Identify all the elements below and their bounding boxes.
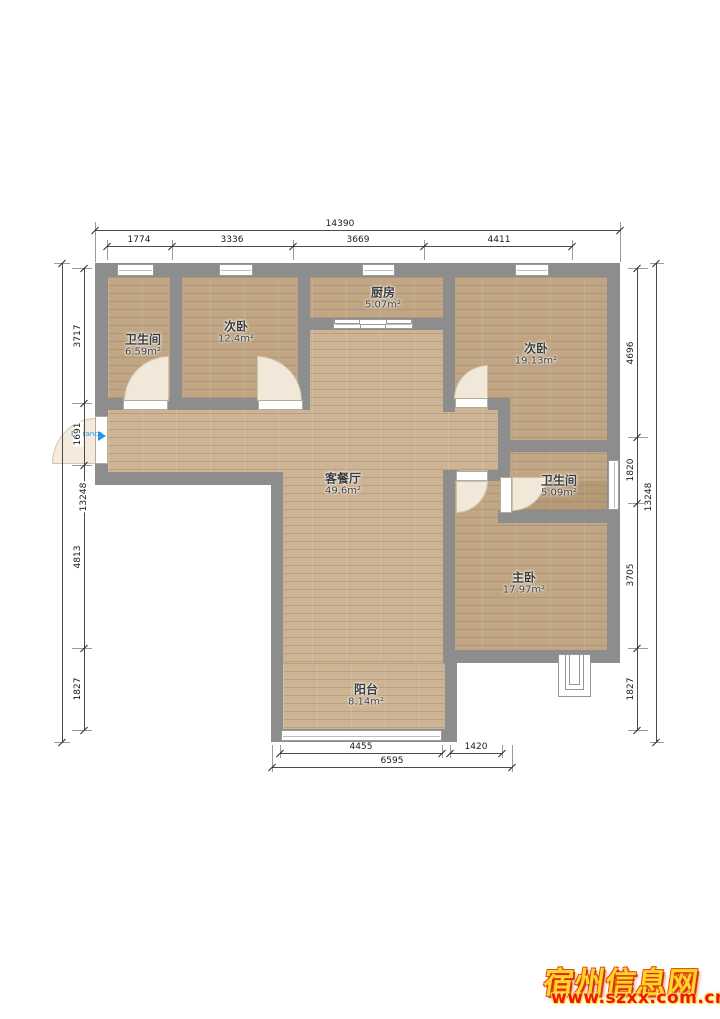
- wall-balcony-east: [445, 663, 457, 742]
- wall-west-lower: [271, 472, 283, 742]
- room-name: 次卧: [515, 343, 557, 356]
- wall-bathroom2-north: [498, 440, 620, 452]
- dim-left-seg-1: 3717: [73, 324, 83, 349]
- room-area: 17.97m²: [503, 585, 545, 597]
- room-name: 厨房: [365, 287, 401, 300]
- dim-right-seg-4: 1827: [626, 677, 636, 702]
- dim-bottom-seg-1: 4455: [349, 742, 374, 752]
- dim-line-right-segments: [637, 268, 638, 730]
- dim-top-seg-3: 3669: [346, 235, 371, 245]
- wall-bathroom1-east: [170, 277, 182, 410]
- wall-living-southwest: [95, 472, 283, 485]
- floor-plan-image: Entrance 卫生间 6.59m² 次卧 12.4m² 厨房 5.07m² …: [0, 0, 720, 1019]
- sliding-panel-3: [386, 319, 412, 324]
- dim-line-bottom-total: [272, 767, 512, 768]
- room-name: 主卧: [503, 572, 545, 585]
- dim-line-bottom-seg-1: [280, 753, 442, 754]
- wall-hall-north-b: [168, 398, 258, 410]
- outside-area-lower-right: [457, 663, 623, 745]
- door-bathroom-1: [123, 400, 168, 410]
- room-area: 6.59m²: [125, 347, 161, 359]
- door-bedroom-2: [455, 398, 488, 408]
- dim-top-seg-2: 3336: [220, 235, 245, 245]
- door-bedroom-1: [258, 400, 303, 410]
- dim-right-seg-1: 4696: [626, 341, 636, 366]
- dim-line-bottom-seg-2: [450, 753, 502, 754]
- dim-line-right-total: [656, 263, 657, 742]
- room-name: 卫生间: [541, 475, 577, 488]
- dim-line-left-total: [62, 263, 63, 742]
- room-area: 12.4m²: [218, 334, 254, 346]
- dim-line-top-segments: [107, 246, 572, 247]
- room-area: 8.14m²: [348, 697, 384, 709]
- room-label-master-bedroom: 主卧 17.97m²: [503, 572, 545, 597]
- room-label-bathroom-1: 卫生间 6.59m²: [125, 334, 161, 359]
- dim-line-top-total: [95, 230, 620, 231]
- radiator-inner-2: [569, 654, 580, 685]
- window-top-2: [219, 264, 253, 276]
- dim-bottom-seg-2: 1420: [464, 742, 489, 752]
- floor-master-bedroom: [455, 481, 607, 650]
- room-name: 阳台: [348, 684, 384, 697]
- window-top-1: [117, 264, 154, 276]
- sliding-panel-2: [360, 324, 386, 329]
- room-label-kitchen: 厨房 5.07m²: [365, 287, 401, 312]
- room-area: 5.07m²: [365, 300, 401, 312]
- dim-top-seg-4: 4411: [487, 235, 512, 245]
- dim-top-total: 14390: [325, 219, 356, 229]
- dim-left-seg-4: 1827: [73, 677, 83, 702]
- room-label-bathroom-2: 卫生间 5.09m²: [541, 475, 577, 500]
- dim-left-seg-2: 1691: [73, 422, 83, 447]
- wall-bedroom2-south-stub: [488, 398, 510, 410]
- wall-bathroom2-south: [498, 510, 620, 523]
- room-area: 49.6m²: [325, 486, 361, 498]
- floor-bedroom-2-ext: [510, 402, 607, 440]
- door-bathroom-2: [500, 477, 512, 513]
- room-name: 卫生间: [125, 334, 161, 347]
- wall-master-west: [443, 470, 455, 663]
- dim-right-total: 13248: [644, 482, 654, 513]
- room-name: 次卧: [218, 321, 254, 334]
- dim-left-seg-3: 4813: [73, 545, 83, 570]
- wall-hall-north-a: [95, 398, 123, 410]
- radiator-symbol: [558, 654, 591, 697]
- room-label-balcony: 阳台 8.14m²: [348, 684, 384, 709]
- window-balcony: [281, 730, 442, 741]
- entrance-arrow-icon: [98, 431, 106, 441]
- door-master-bedroom: [456, 471, 488, 481]
- room-label-bedroom-1: 次卧 12.4m²: [218, 321, 254, 346]
- room-area: 5.09m²: [541, 488, 577, 500]
- dim-bottom-total: 6595: [380, 756, 405, 766]
- dim-left-total: 13248: [79, 482, 89, 513]
- dim-top-seg-1: 1774: [127, 235, 152, 245]
- watermark-site-url: www.szxx.com.cn: [551, 988, 720, 1008]
- wall-central: [443, 277, 455, 412]
- wall-master-door-stub-b: [488, 470, 500, 481]
- window-top-4: [515, 264, 549, 276]
- wall-left-upper: [95, 263, 108, 417]
- wall-master-south: [443, 650, 620, 663]
- window-right: [608, 460, 619, 510]
- room-label-bedroom-2: 次卧 19.13m²: [515, 343, 557, 368]
- outside-area-lower-left: [86, 485, 283, 745]
- room-label-living-dining: 客餐厅 49.6m²: [325, 473, 361, 498]
- room-area: 19.13m²: [515, 356, 557, 368]
- room-name: 客餐厅: [325, 473, 361, 486]
- dim-right-seg-3: 3705: [626, 563, 636, 588]
- sliding-panel-1: [334, 319, 360, 324]
- dim-right-seg-2: 1820: [626, 458, 636, 483]
- window-top-3: [362, 264, 395, 276]
